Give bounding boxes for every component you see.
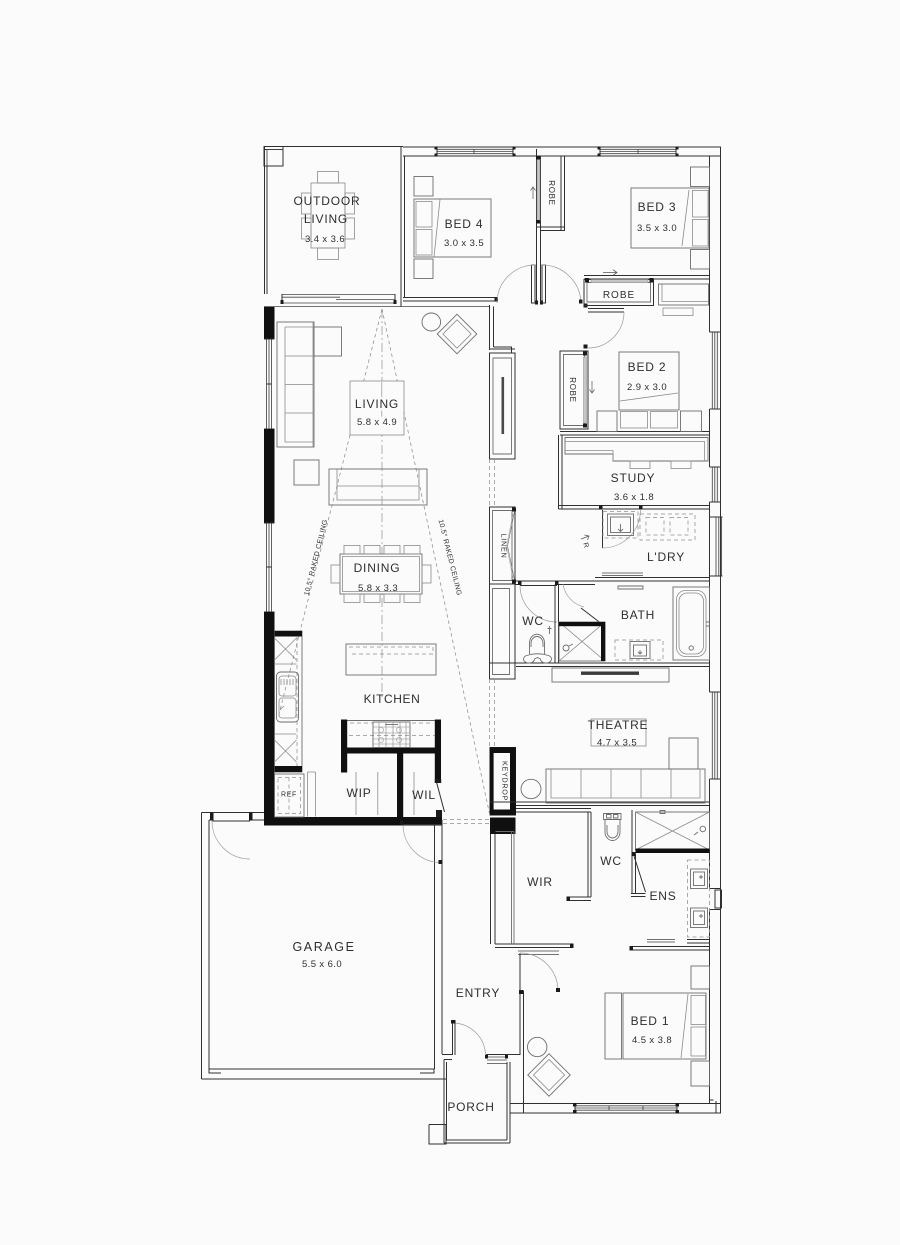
svg-text:BATH: BATH bbox=[621, 608, 655, 622]
svg-text:ENS: ENS bbox=[649, 889, 676, 903]
svg-text:4.5 x 3.8: 4.5 x 3.8 bbox=[632, 1035, 672, 1046]
svg-text:WC: WC bbox=[600, 854, 622, 868]
svg-text:WIL: WIL bbox=[412, 788, 436, 802]
svg-text:BED 3: BED 3 bbox=[638, 200, 677, 214]
svg-text:ROBE: ROBE bbox=[568, 377, 577, 402]
svg-text:ENTRY: ENTRY bbox=[456, 986, 500, 1000]
svg-text:STUDY: STUDY bbox=[611, 471, 656, 485]
svg-text:BED 2: BED 2 bbox=[628, 360, 667, 374]
svg-text:3.5 x 3.0: 3.5 x 3.0 bbox=[637, 223, 677, 234]
svg-text:KEYDROP: KEYDROP bbox=[501, 761, 510, 801]
svg-text:5.8 x 3.3: 5.8 x 3.3 bbox=[358, 583, 398, 594]
svg-text:WC: WC bbox=[522, 614, 544, 628]
svg-text:OUTDOOR: OUTDOOR bbox=[294, 194, 361, 208]
svg-text:5.5 x 6.0: 5.5 x 6.0 bbox=[302, 959, 342, 970]
svg-text:PORCH: PORCH bbox=[447, 1100, 494, 1114]
svg-text:WIR: WIR bbox=[527, 875, 553, 889]
svg-text:2.9 x 3.0: 2.9 x 3.0 bbox=[627, 382, 667, 393]
svg-text:3.4 x 3.6: 3.4 x 3.6 bbox=[305, 234, 345, 245]
svg-text:L'DRY: L'DRY bbox=[647, 550, 685, 564]
svg-text:GARAGE: GARAGE bbox=[292, 940, 355, 954]
svg-text:DINING: DINING bbox=[354, 561, 401, 575]
svg-text:5.8 x 4.9: 5.8 x 4.9 bbox=[357, 417, 397, 428]
svg-text:ROBE: ROBE bbox=[603, 290, 635, 301]
svg-text:3.6 x 1.8: 3.6 x 1.8 bbox=[614, 492, 654, 503]
svg-text:LIVING: LIVING bbox=[355, 397, 399, 411]
svg-text:3.0 x 3.5: 3.0 x 3.5 bbox=[444, 238, 484, 249]
svg-text:4.7 x 3.5: 4.7 x 3.5 bbox=[597, 738, 637, 749]
svg-text:LIVING: LIVING bbox=[304, 212, 348, 226]
svg-text:WIP: WIP bbox=[346, 786, 371, 800]
svg-text:ROBE: ROBE bbox=[547, 180, 556, 205]
svg-text:BED 4: BED 4 bbox=[445, 217, 484, 231]
svg-text:THEATRE: THEATRE bbox=[588, 718, 649, 732]
svg-text:LINEN: LINEN bbox=[500, 534, 509, 559]
svg-text:REF: REF bbox=[281, 792, 297, 799]
svg-text:BED 1: BED 1 bbox=[631, 1014, 670, 1028]
svg-text:KITCHEN: KITCHEN bbox=[364, 692, 421, 706]
